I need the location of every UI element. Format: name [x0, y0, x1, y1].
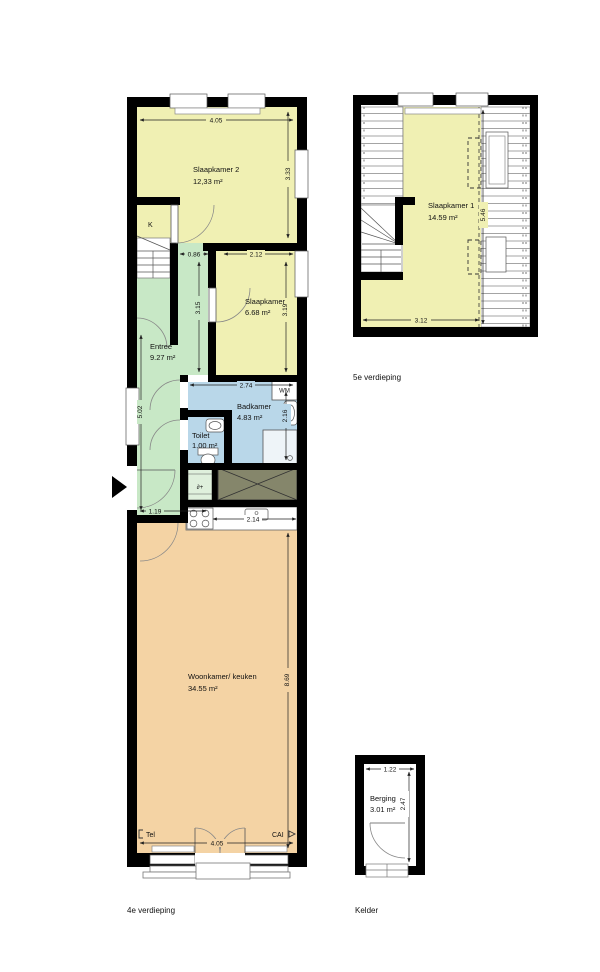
dim-entree-width: 1.19 — [149, 509, 162, 516]
plan-kelder: 1.22 2.47 Berging 3.01 m² Kelder — [355, 755, 425, 915]
label-slaapkamer-area: 6.68 m² — [245, 308, 271, 317]
door-leaf — [209, 288, 216, 322]
tel-label: Tel — [146, 832, 155, 839]
window — [486, 237, 506, 272]
meter-symbol: ∂+ — [197, 484, 204, 491]
label-woonkamer-name: Woonkamer/ keuken — [188, 672, 257, 681]
wall — [212, 468, 218, 500]
dim-kelder-height: 2.47 — [400, 797, 407, 810]
label-slaapkamer1-name: Slaapkamer 1 — [428, 201, 474, 210]
label-closet-k: K — [148, 222, 153, 229]
label-entree-name: Entree — [150, 342, 172, 351]
dim-top-width: 4.05 — [210, 118, 223, 125]
label-badkamer-name: Badkamer — [237, 402, 272, 411]
window — [170, 94, 207, 108]
room-slaapkamer-1 — [403, 107, 481, 280]
plan-label-4e: 4e verdieping — [127, 906, 175, 915]
front-door-opening — [127, 466, 137, 510]
window-sill — [152, 846, 194, 852]
washing-machine: WM — [272, 379, 297, 400]
dim-badkamer-height: 2.16 — [282, 409, 289, 422]
label-slaapkamer1-area: 14.59 m² — [428, 213, 458, 222]
dim-hall-height: 3.15 — [195, 301, 202, 314]
dim-5e-width: 3.12 — [415, 318, 428, 325]
shower — [263, 430, 297, 464]
dim-slaapkamer-width: 2.12 — [250, 252, 263, 259]
dim-badkamer-width: 2.74 — [240, 383, 253, 390]
dim-5e-height: 5.46 — [480, 208, 487, 221]
dim-entree-height: 5.02 — [137, 405, 144, 418]
floorplan-drawing: ∂+ WM — [0, 0, 600, 972]
dim-woonkamer-height: 8.69 — [284, 673, 291, 686]
dim-slaapkamer2-height: 3.33 — [285, 167, 292, 180]
dim-kelder-width: 1.22 — [384, 767, 397, 774]
window — [295, 150, 308, 198]
door-leaf — [171, 205, 178, 243]
plan-label-kelder: Kelder — [355, 906, 378, 915]
plan-5e-verdieping: 3.12 5.46 Slaapkamer 1 14.59 m² 5e verdi… — [353, 93, 538, 382]
plan-4e-verdieping: ∂+ WM — [112, 94, 308, 915]
window — [456, 93, 488, 106]
label-toilet-area: 1.00 m² — [192, 441, 218, 450]
window-sill — [175, 108, 260, 114]
dim-hall-width: 0.86 — [188, 252, 201, 259]
kitchen-counter — [186, 507, 297, 530]
window — [228, 94, 265, 108]
label-slaapkamer2-area: 12,33 m² — [193, 177, 223, 186]
label-woonkamer-area: 34.55 m² — [188, 684, 218, 693]
window-sill — [405, 108, 481, 114]
svg-text:WM: WM — [279, 389, 290, 395]
label-berging-name: Berging — [370, 794, 396, 803]
entrance-arrow — [112, 476, 127, 498]
window-sill — [245, 846, 287, 852]
shaft-void — [218, 468, 297, 500]
closet-k — [137, 205, 170, 238]
dim-kitchen-width: 2.14 — [247, 517, 260, 524]
label-slaapkamer2-name: Slaapkamer 2 — [193, 165, 239, 174]
window — [295, 251, 308, 297]
label-berging-area: 3.01 m² — [370, 805, 396, 814]
label-entree-area: 9.27 m² — [150, 353, 176, 362]
dim-bottom-width: 4.05 — [211, 841, 224, 848]
meter-cupboard — [188, 468, 212, 500]
label-badkamer-area: 4.83 m² — [237, 413, 263, 422]
plan-label-5e: 5e verdieping — [353, 373, 401, 382]
cai-label: CAI — [272, 832, 284, 839]
window — [150, 855, 195, 864]
window — [398, 93, 433, 106]
floorplan-sheet: ∂+ WM — [0, 0, 600, 972]
label-slaapkamer-name: Slaapkamer — [245, 297, 286, 306]
label-toilet-name: Toilet — [192, 431, 210, 440]
roof-area-left — [361, 107, 403, 205]
stairs-4e — [137, 236, 170, 278]
